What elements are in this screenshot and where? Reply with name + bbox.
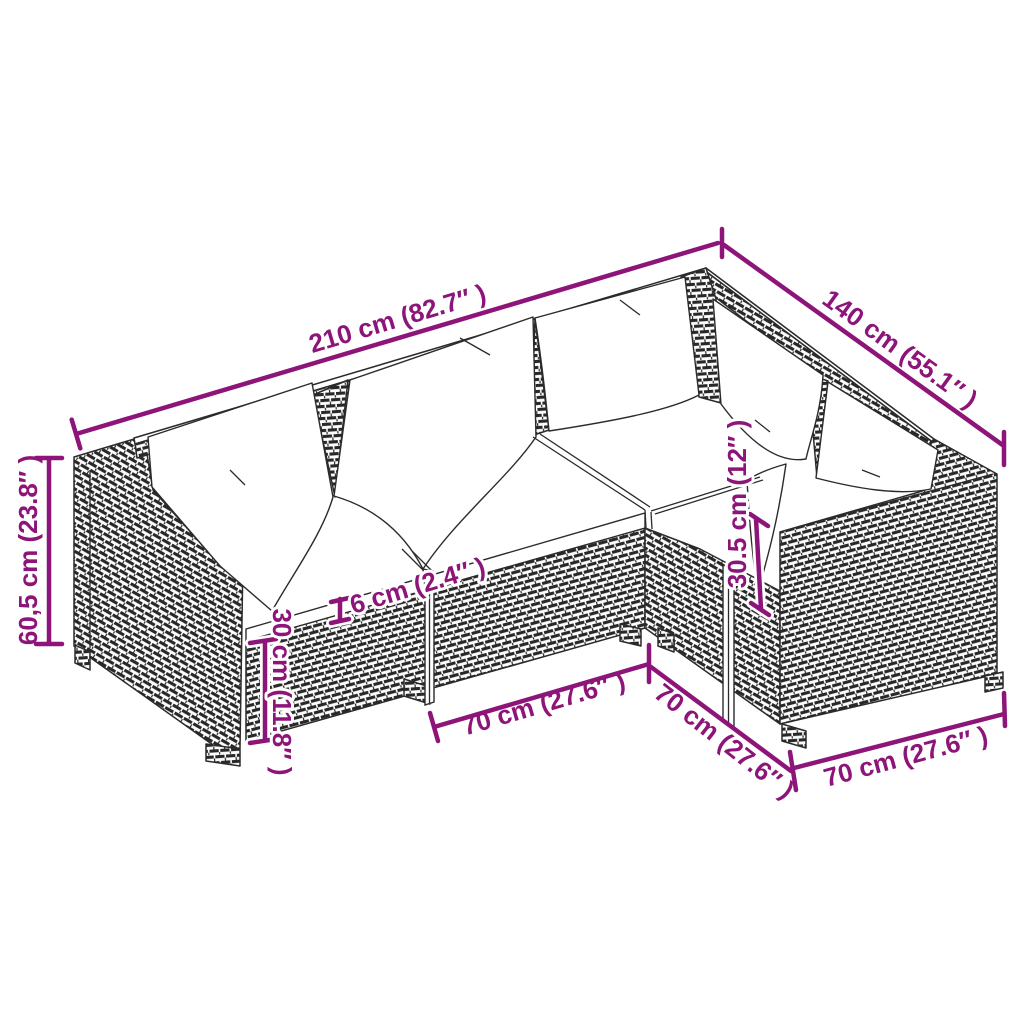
svg-text:60,5 cm (23.8″ ): 60,5 cm (23.8″ ): [13, 455, 43, 645]
svg-text:30 cm (11.8″ ): 30 cm (11.8″ ): [267, 608, 297, 775]
svg-text:30.5 cm (12″ ): 30.5 cm (12″ ): [722, 420, 752, 589]
